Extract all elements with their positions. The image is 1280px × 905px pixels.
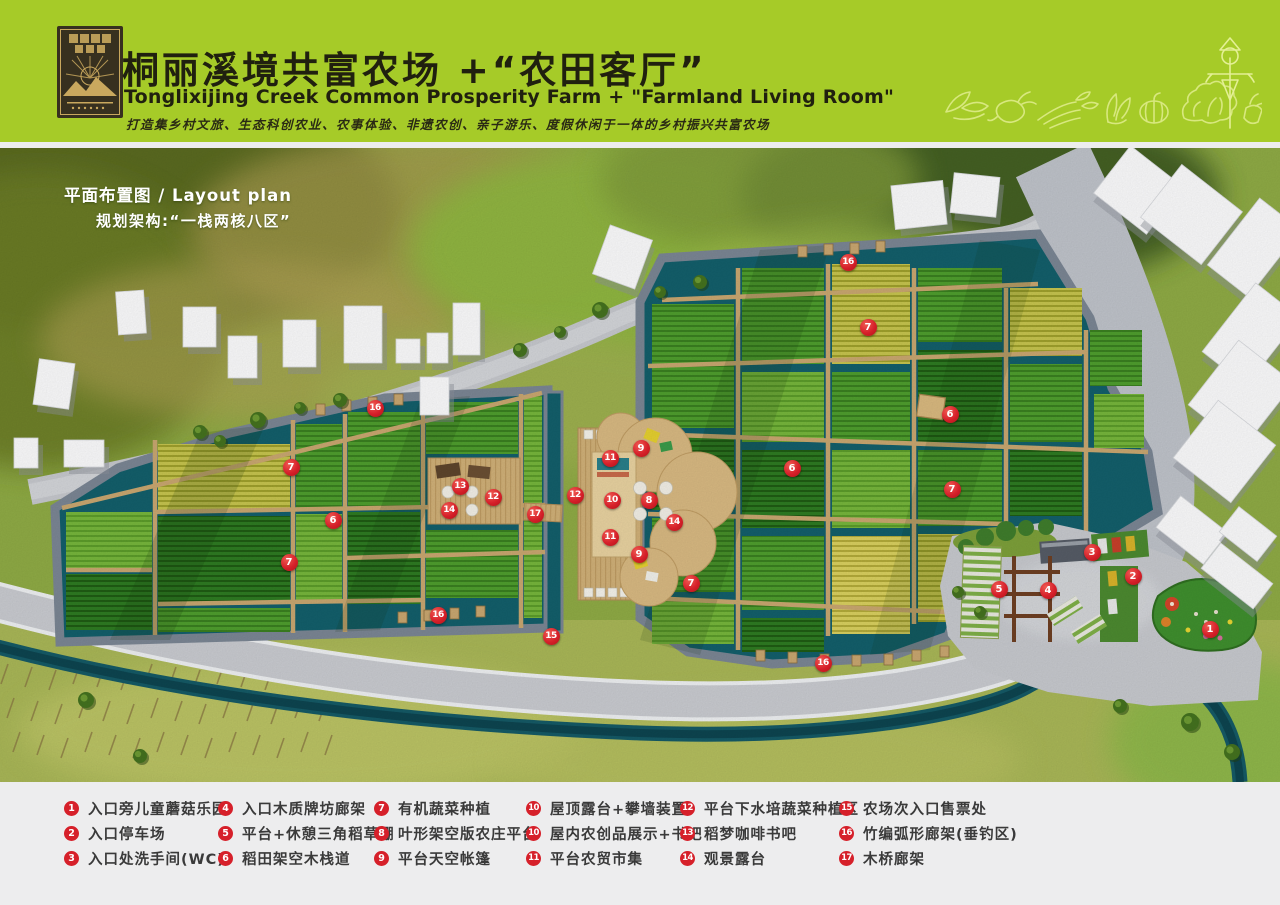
legend-number-badge: 4 bbox=[218, 801, 233, 816]
pumpkin-icon bbox=[1140, 93, 1168, 123]
legend-item-16: 16竹编弧形廊架(垂钓区) bbox=[839, 825, 1018, 841]
legend-label: 入口停车场 bbox=[88, 823, 166, 844]
map-marker-16: 16 bbox=[815, 655, 832, 672]
legend-item-14: 14观景露台 bbox=[680, 850, 859, 866]
legend-number-badge: 3 bbox=[64, 851, 79, 866]
map-marker-4: 4 bbox=[1040, 582, 1057, 599]
map-marker-14: 14 bbox=[666, 514, 683, 531]
map-marker-7: 7 bbox=[944, 481, 961, 498]
legend-number-badge: 1 bbox=[64, 801, 79, 816]
map-marker-2: 2 bbox=[1125, 568, 1142, 585]
legend-column-2: 4入口木质牌坊廊架5平台+休憩三角稻草棚6稻田架空木栈道 bbox=[218, 800, 395, 866]
legend-number-badge: 14 bbox=[680, 851, 695, 866]
legend-label: 入口旁儿童蘑菇乐园 bbox=[88, 798, 228, 819]
legend-number-badge: 7 bbox=[374, 801, 389, 816]
legend-label: 平台天空帐篷 bbox=[398, 848, 491, 869]
legend-number-badge: 17 bbox=[839, 851, 854, 866]
map-marker-7: 7 bbox=[860, 319, 877, 336]
legend-label: 屋顶露台+攀墙装置 bbox=[550, 798, 687, 819]
legend-label: 竹编弧形廊架(垂钓区) bbox=[863, 823, 1018, 844]
legend-label: 平台+休憩三角稻草棚 bbox=[242, 823, 395, 844]
map-marker-6: 6 bbox=[784, 460, 801, 477]
map-title: 平面布置图 / Layout plan bbox=[64, 182, 292, 206]
legend-label: 木桥廊架 bbox=[863, 848, 925, 869]
map-marker-8: 8 bbox=[641, 492, 658, 509]
legend-item-8: 8叶形架空版农庄平台 bbox=[374, 825, 538, 841]
vegetable-icons bbox=[932, 0, 1262, 142]
legend-number-badge: 11 bbox=[526, 851, 541, 866]
legend-number-badge: 13 bbox=[680, 826, 695, 841]
legend-column-1: 1入口旁儿童蘑菇乐园2入口停车场3入口处洗手间(WC) bbox=[64, 800, 228, 866]
scarecrow-icon bbox=[1206, 38, 1254, 128]
map-marker-11: 11 bbox=[602, 450, 619, 467]
celery-icon bbox=[1038, 92, 1098, 128]
legend-label: 叶形架空版农庄平台 bbox=[398, 823, 538, 844]
legend-label: 平台下水培蔬菜种植区 bbox=[704, 798, 859, 819]
map-marker-16: 16 bbox=[840, 254, 857, 271]
sprout-icon bbox=[946, 92, 988, 119]
legend-item-1: 1入口旁儿童蘑菇乐园 bbox=[64, 800, 228, 816]
legend-item-5: 5平台+休憩三角稻草棚 bbox=[218, 825, 395, 841]
map-marker-5: 5 bbox=[991, 581, 1008, 598]
map-marker-9: 9 bbox=[633, 440, 650, 457]
map-marker-17: 17 bbox=[527, 506, 544, 523]
map-marker-9: 9 bbox=[631, 546, 648, 563]
legend-item-2: 2入口停车场 bbox=[64, 825, 228, 841]
legend-label: 农场次入口售票处 bbox=[863, 798, 987, 819]
legend-column-6: 15农场次入口售票处16竹编弧形廊架(垂钓区)17木桥廊架 bbox=[839, 800, 1018, 866]
radish-icon bbox=[988, 92, 1036, 122]
map-marker-16: 16 bbox=[430, 607, 447, 624]
legend-number-badge: 9 bbox=[374, 851, 389, 866]
map-marker-16: 16 bbox=[367, 400, 384, 417]
map-marker-12: 12 bbox=[485, 489, 502, 506]
legend-item-10: 10屋顶露台+攀墙装置 bbox=[526, 800, 703, 816]
legend-number-badge: 8 bbox=[374, 826, 389, 841]
legend-number-badge: 15 bbox=[839, 801, 854, 816]
map-marker-15: 15 bbox=[543, 628, 560, 645]
legend-label: 入口处洗手间(WC) bbox=[88, 848, 225, 869]
legend-item-7: 7有机蔬菜种植 bbox=[374, 800, 538, 816]
page-subtitle-en: Tonglixijing Creek Common Prosperity Far… bbox=[124, 86, 894, 108]
legend-number-badge: 10 bbox=[526, 801, 541, 816]
map-marker-7: 7 bbox=[281, 554, 298, 571]
legend-number-badge: 6 bbox=[218, 851, 233, 866]
site-plan-map: 平面布置图 / Layout plan 规划架构:“一栈两核八区” 123456… bbox=[0, 148, 1280, 782]
legend-column-5: 12平台下水培蔬菜种植区13稻梦咖啡书吧14观景露台 bbox=[680, 800, 859, 866]
legend-label: 平台农贸市集 bbox=[550, 848, 643, 869]
map-marker-7: 7 bbox=[683, 575, 700, 592]
legend-label: 稻梦咖啡书吧 bbox=[704, 823, 797, 844]
legend-label: 观景露台 bbox=[704, 848, 766, 869]
legend-number-badge: 10 bbox=[526, 826, 541, 841]
map-marker-1: 1 bbox=[1202, 621, 1219, 638]
legend-item-9: 9平台天空帐篷 bbox=[374, 850, 538, 866]
legend-item-17: 17木桥廊架 bbox=[839, 850, 1018, 866]
legend-number-badge: 12 bbox=[680, 801, 695, 816]
legend-label: 有机蔬菜种植 bbox=[398, 798, 491, 819]
lettuce-icon bbox=[1183, 81, 1237, 123]
legend-number-badge: 2 bbox=[64, 826, 79, 841]
map-marker-6: 6 bbox=[325, 512, 342, 529]
legend-label: 稻田架空木栈道 bbox=[242, 848, 351, 869]
map-marker-3: 3 bbox=[1084, 544, 1101, 561]
legend-item-11: 11平台农贸市集 bbox=[526, 850, 703, 866]
map-marker-7: 7 bbox=[283, 459, 300, 476]
legend-number-badge: 16 bbox=[839, 826, 854, 841]
legend: 1入口旁儿童蘑菇乐园2入口停车场3入口处洗手间(WC)4入口木质牌坊廊架5平台+… bbox=[0, 782, 1280, 905]
map-marker-10: 10 bbox=[604, 492, 621, 509]
map-marker-13: 13 bbox=[452, 478, 469, 495]
legend-item-12: 12平台下水培蔬菜种植区 bbox=[680, 800, 859, 816]
legend-item-10: 10屋内农创品展示+书吧 bbox=[526, 825, 703, 841]
legend-item-15: 15农场次入口售票处 bbox=[839, 800, 1018, 816]
legend-column-3: 7有机蔬菜种植8叶形架空版农庄平台9平台天空帐篷 bbox=[374, 800, 538, 866]
legend-number-badge: 5 bbox=[218, 826, 233, 841]
map-marker-14: 14 bbox=[441, 502, 458, 519]
legend-item-4: 4入口木质牌坊廊架 bbox=[218, 800, 395, 816]
bokchoy-icon bbox=[1107, 94, 1130, 124]
legend-label: 入口木质牌坊廊架 bbox=[242, 798, 366, 819]
legend-item-13: 13稻梦咖啡书吧 bbox=[680, 825, 859, 841]
header-tagline: 打造集乡村文旅、生态科创农业、农事体验、非遗农创、亲子游乐、度假休闲于一体的乡村… bbox=[126, 114, 770, 133]
map-marker-12: 12 bbox=[567, 487, 584, 504]
legend-column-4: 10屋顶露台+攀墙装置10屋内农创品展示+书吧11平台农贸市集 bbox=[526, 800, 703, 866]
legend-item-3: 3入口处洗手间(WC) bbox=[64, 850, 228, 866]
legend-item-6: 6稻田架空木栈道 bbox=[218, 850, 395, 866]
map-marker-6: 6 bbox=[942, 406, 959, 423]
map-marker-11: 11 bbox=[602, 529, 619, 546]
header-banner: 桐丽溪境共富农场 +“农田客厅” Tonglixijing Creek Comm… bbox=[0, 0, 1280, 142]
farm-logo-icon bbox=[57, 26, 123, 118]
turnip-icon bbox=[1244, 94, 1262, 123]
map-subtitle: 规划架构:“一栈两核八区” bbox=[96, 210, 291, 231]
